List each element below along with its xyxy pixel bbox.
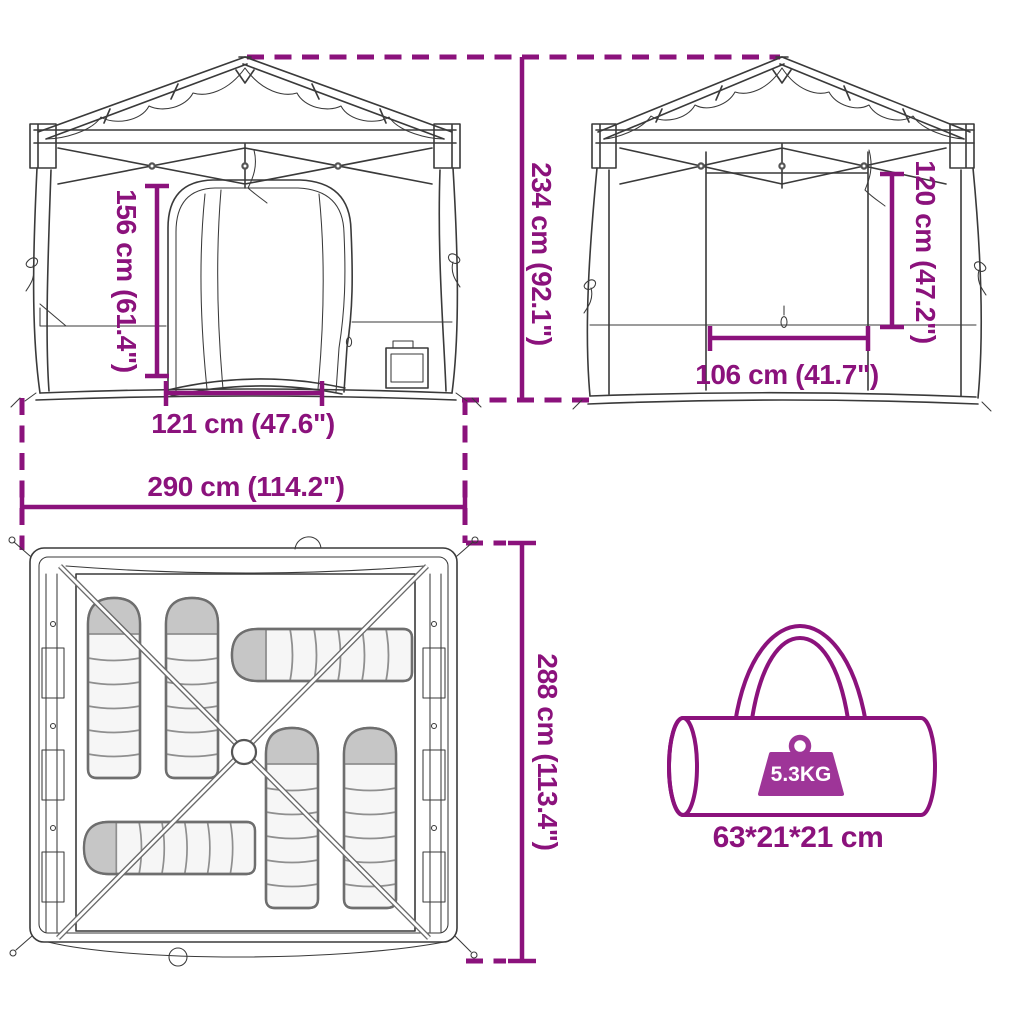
bag-size-label: 63*21*21 cm: [713, 821, 884, 855]
sleeping-bag: [166, 598, 218, 778]
dim-label-window-height: 120 cm (47.2"): [909, 160, 941, 344]
sleeping-bag: [88, 598, 140, 778]
dim-label-tent-depth: 288 cm (113.4"): [531, 653, 563, 850]
front-view-tent: [11, 57, 481, 407]
dim-label-door-width: 121 cm (47.6"): [151, 408, 335, 440]
dim-label-tent-height: 234 cm (92.1"): [525, 162, 557, 346]
diagram-line-art: [0, 0, 1024, 1024]
dim-label-door-height: 156 cm (61.4"): [110, 189, 142, 373]
sleeping-bag: [84, 822, 255, 874]
product-dimension-diagram: 156 cm (61.4") 121 cm (47.6") 290 cm (11…: [0, 0, 1024, 1024]
dim-label-tent-width: 290 cm (114.2"): [147, 471, 344, 503]
bag-weight-label: 5.3KG: [771, 763, 832, 787]
top-view-tent: [9, 537, 478, 966]
dim-label-window-width: 106 cm (41.7"): [695, 359, 879, 391]
